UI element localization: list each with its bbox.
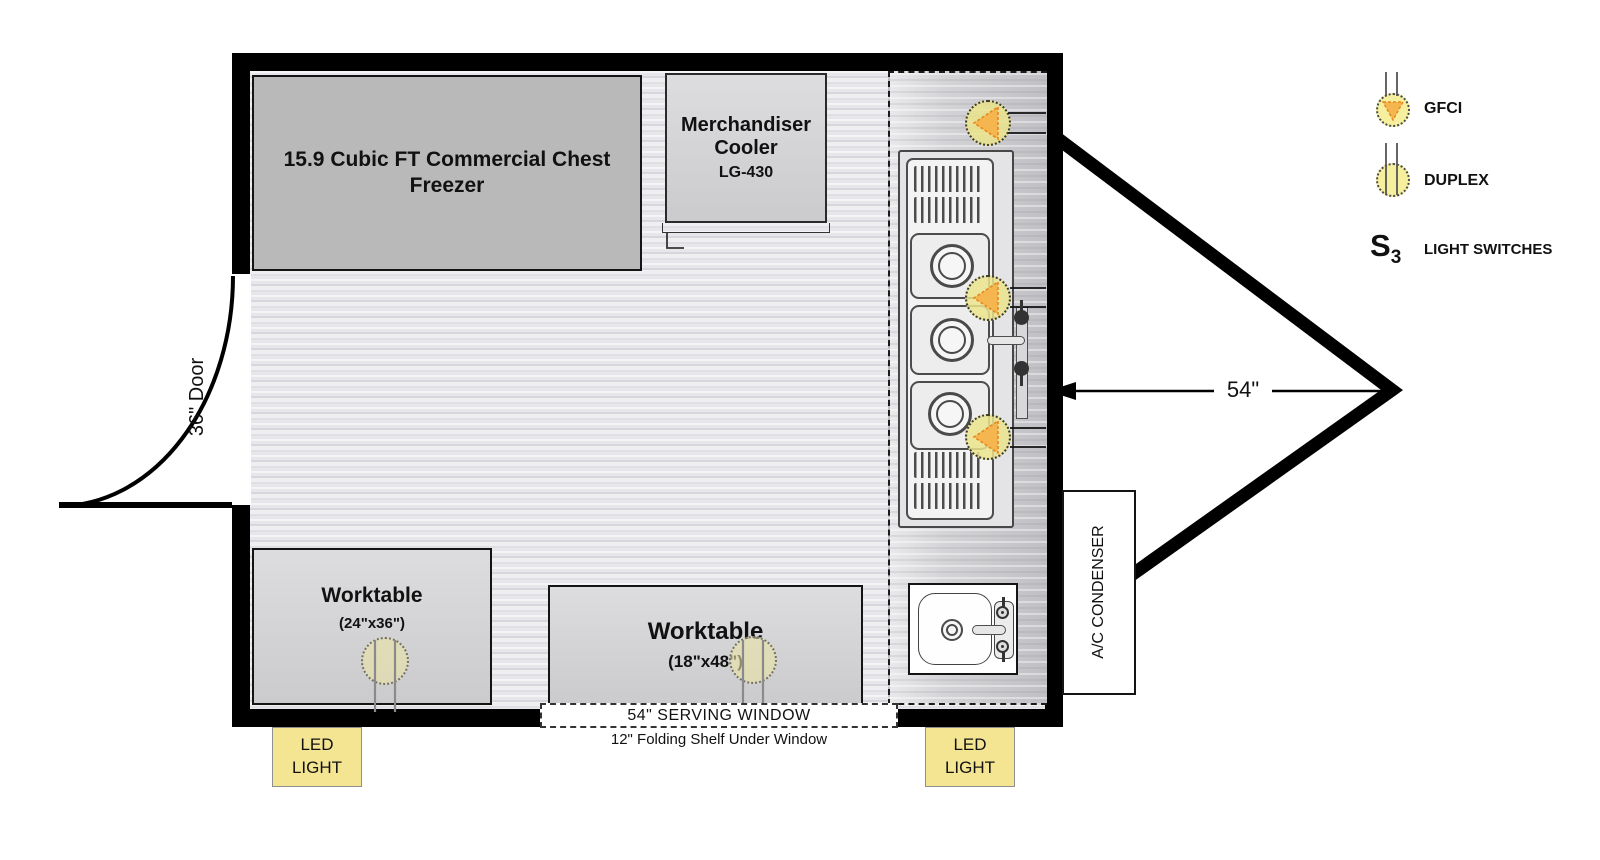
worktable-small-size: (24"x36") bbox=[339, 615, 405, 632]
door-label: 36" Door bbox=[182, 332, 212, 462]
led-light-line1: LED bbox=[300, 734, 333, 757]
gfci-outlet-middle bbox=[965, 275, 1011, 321]
serving-window: 54" SERVING WINDOW bbox=[540, 703, 898, 728]
legend-light-switches-label: LIGHT SWITCHES bbox=[1424, 241, 1552, 258]
worktable-small-label: Worktable bbox=[321, 583, 422, 608]
duplex-outlet-worktable-large bbox=[729, 636, 777, 684]
drain-ring-3-inner bbox=[936, 400, 964, 428]
hitch-dimension-label: 54" bbox=[1214, 376, 1272, 404]
cooler-label-line2: Cooler bbox=[714, 137, 777, 160]
gfci-triangle-icon bbox=[967, 416, 1009, 458]
faucet-knob-top bbox=[1014, 310, 1029, 325]
knob-stem-bottom bbox=[1020, 375, 1023, 386]
switch-subscript: 3 bbox=[1391, 247, 1402, 268]
duplex-outlet-worktable-small bbox=[361, 637, 409, 685]
hand-sink-faucet bbox=[972, 625, 1006, 635]
door-opening bbox=[230, 274, 251, 505]
faucet-knob-bottom bbox=[1014, 361, 1029, 376]
led-light-line1: LED bbox=[953, 734, 986, 757]
gfci-triangle-down-icon bbox=[1378, 95, 1408, 125]
worktable-large: Worktable (18"x48") bbox=[548, 585, 863, 705]
drainboard-ridges-top-2 bbox=[914, 197, 984, 223]
chest-freezer: 15.9 Cubic FT Commercial Chest Freezer bbox=[252, 75, 642, 271]
chest-freezer-label: 15.9 Cubic FT Commercial Chest Freezer bbox=[272, 147, 622, 200]
legend-duplex-icon bbox=[1376, 163, 1410, 197]
ac-condenser-label: A/C CONDENSER bbox=[1089, 497, 1109, 687]
hand-sink-tap-stem-bottom bbox=[1002, 652, 1005, 662]
led-light-label-right: LED LIGHT bbox=[925, 727, 1015, 787]
legend-gfci-label: GFCI bbox=[1424, 100, 1462, 118]
cooler-label-line1: Merchandiser bbox=[681, 114, 811, 137]
hand-sink-tap-hot bbox=[996, 606, 1009, 619]
led-light-line2: LIGHT bbox=[945, 757, 995, 780]
switch-letter: S bbox=[1370, 228, 1391, 263]
folding-shelf-note: 12" Folding Shelf Under Window bbox=[540, 731, 898, 748]
gfci-triangle-icon bbox=[967, 102, 1009, 144]
drain-ring-2-inner bbox=[938, 326, 966, 354]
cooler-shelf bbox=[662, 223, 830, 233]
drainboard-ridges-top-1 bbox=[914, 166, 984, 192]
gfci-triangle-icon bbox=[967, 277, 1009, 319]
led-light-line2: LIGHT bbox=[292, 757, 342, 780]
gfci-outlet-top bbox=[965, 100, 1011, 146]
hand-sink-drain-inner bbox=[946, 624, 958, 636]
drain-ring-1-inner bbox=[938, 252, 966, 280]
cooler-model: LG-430 bbox=[719, 164, 773, 182]
merchandiser-cooler: Merchandiser Cooler LG-430 bbox=[665, 73, 827, 223]
legend-gfci-icon bbox=[1376, 93, 1410, 127]
serving-window-label: 54" SERVING WINDOW bbox=[627, 707, 810, 725]
legend-duplex-label: DUPLEX bbox=[1424, 172, 1489, 190]
legend-switch-icon: S3 bbox=[1370, 228, 1401, 269]
gfci-outlet-bottom bbox=[965, 414, 1011, 460]
faucet-handle bbox=[987, 336, 1025, 345]
floor-plan-canvas: 15.9 Cubic FT Commercial Chest Freezer M… bbox=[0, 0, 1600, 860]
drainboard-ridges-bottom-2 bbox=[914, 483, 984, 509]
led-light-label-left: LED LIGHT bbox=[272, 727, 362, 787]
